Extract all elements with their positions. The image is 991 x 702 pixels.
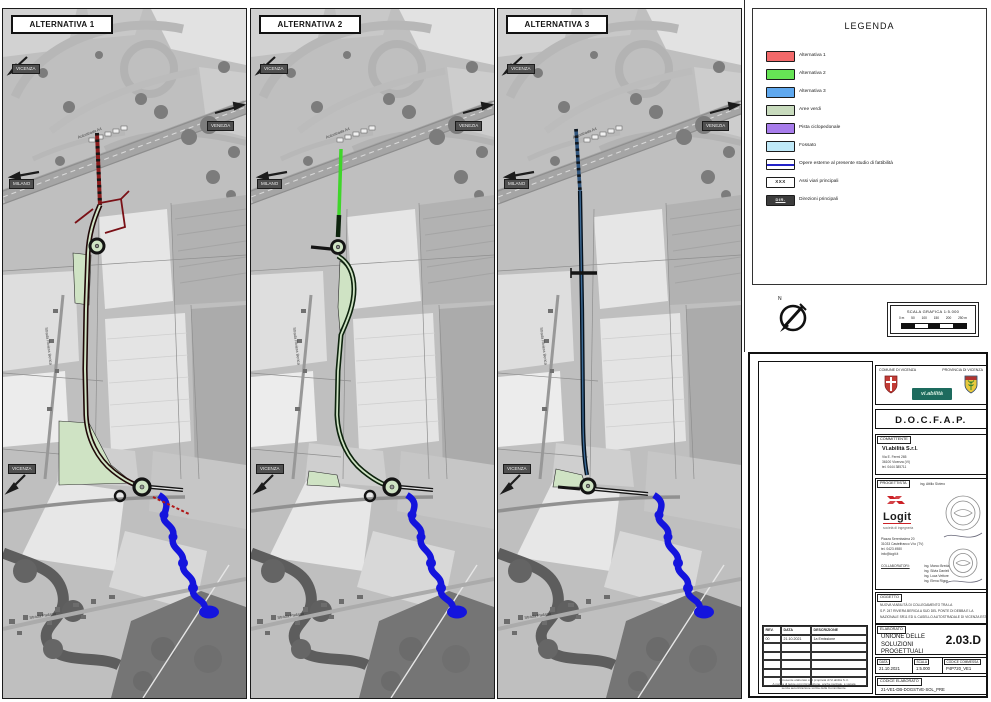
rev-cell: 00 [763, 635, 781, 644]
north-arrow-icon [776, 299, 810, 335]
scale-title: SCALA GRAFICA 1:5.000 [891, 309, 975, 314]
progettista-box: PROGETTISTA ing. Attilio Siviero Logit s… [875, 478, 987, 590]
rev-cell [781, 652, 811, 661]
meta-row: DATA 21.10.2021 SCALA 1:5.000 CODICE COM… [875, 657, 987, 674]
oggetto-line: NUOVA VIABILITÀ DI COLLEGAMENTO TRA LA [880, 603, 952, 608]
legend-swatch-alt3 [766, 87, 795, 98]
legend-item-aree-verdi: Aree verdi [753, 105, 986, 119]
scale-tick: 150 [934, 316, 939, 320]
scala-value: 1:5.000 [916, 666, 930, 671]
rev-header: DESCRIZIONE [811, 626, 867, 635]
doc-title-box: D.O.C.F.A.P. [875, 409, 987, 429]
aerial-photo-alt3 [498, 9, 741, 698]
revision-area: REV. DATA DESCRIZIONE 00 21.10.2021 1a E… [758, 361, 873, 694]
blue-line-glyph [767, 164, 794, 166]
map-label-milano: MILANO [504, 179, 529, 189]
map-label-venezia: VENEZIA [702, 121, 729, 131]
rev-header: REV. [763, 626, 781, 635]
map-label-venezia: VENEZIA [455, 121, 482, 131]
panel-badge-alt1: ALTERNATIVA 1 [11, 15, 113, 34]
xxx-glyph: XXX [767, 178, 794, 186]
map-label-milano: MILANO [9, 179, 34, 189]
elaborato-name: UNIONE DELLE SOLUZIONI PROGETTUALI [881, 634, 939, 657]
map-panel-alternativa-2: ALTERNATIVA 2 VICENZA VENEZIA MILANO VIC… [250, 8, 495, 699]
firm-line: info@logit.it [881, 552, 898, 557]
legend-item-opere-esterne: Opere esterne al presente studio di fatt… [753, 159, 986, 173]
legend-label: Pista ciclopedonale [799, 125, 840, 130]
scale-tick: 250 m [958, 316, 967, 320]
codice-elaborato-box: CODICE ELABORATO 21-VE1-DB-DOGSTVE-SOL_P… [875, 676, 987, 695]
logit-logo-icon [885, 495, 905, 509]
legend-swatch-alt1 [766, 51, 795, 62]
rev-cell [781, 643, 811, 652]
committente-line: tel. 0444 385711 [882, 465, 906, 470]
legend-item-alternativa-3: Alternativa 3 [753, 87, 986, 101]
committente-tab: COMMITTENTE [877, 436, 911, 444]
legend-label: Alternativa 3 [799, 89, 826, 94]
stamp-icon [940, 491, 984, 587]
map-label-venezia: VENEZIA [207, 121, 234, 131]
rev-cell [811, 660, 867, 669]
firm-line: tel. 0423 4980 [881, 547, 902, 552]
scala-label: SCALA [914, 659, 929, 665]
map-label-milano: MILANO [257, 179, 282, 189]
column-divider [744, 0, 745, 352]
rev-cell [811, 643, 867, 652]
scala-cell: SCALA 1:5.000 [912, 658, 942, 673]
data-label: DATA [877, 659, 890, 665]
legend-swatch-direzioni: DIR. [766, 195, 795, 206]
doc-title: D.O.C.F.A.P. [876, 415, 986, 426]
authorities-box: COMUNE DI VICENZA PROVINCIA DI VICENZA v… [875, 365, 987, 405]
commessa-label: CODICE COMMESSA [944, 659, 981, 665]
legend-panel: LEGENDA Alternativa 1 Alternativa 2 Alte… [752, 8, 987, 285]
fine-print: Il presente elaborato è di proprietà di … [761, 678, 867, 691]
provincia-shield-icon [964, 375, 978, 394]
title-block: REV. DATA DESCRIZIONE 00 21.10.2021 1a E… [748, 352, 988, 698]
committente-line: 36100 Vicenza (VI) [882, 460, 910, 465]
scale-bar-segments [901, 323, 967, 329]
elaborato-code: 2.03.D [946, 633, 981, 647]
elaborato-box: ELABORATO UNIONE DELLE SOLUZIONI PROGETT… [875, 624, 987, 655]
scale-tick: 50 [911, 316, 915, 320]
aerial-photo-alt1 [3, 9, 246, 698]
legend-item-alternativa-2: Alternativa 2 [753, 69, 986, 83]
legend-label: Alternativa 2 [799, 71, 826, 76]
viabilita-logo: vi.abilità [912, 388, 952, 400]
rev-cell [811, 652, 867, 661]
map-label-vicenza-bottom: VICENZA [256, 464, 284, 474]
committente-line: Via E. Fermi 265 [882, 455, 907, 460]
legend-swatch-pista [766, 123, 795, 134]
panel-badge-alt3: ALTERNATIVA 3 [506, 15, 608, 34]
oggetto-box: OGGETTO NUOVA VIABILITÀ DI COLLEGAMENTO … [875, 592, 987, 624]
comune-shield-icon [884, 375, 898, 394]
oggetto-line: S.P. 247 RIVIERA BERICA A SUD DEL PONTE … [880, 609, 973, 614]
committente-box: COMMITTENTE Vi.abilità S.r.l. Via E. Fer… [875, 434, 987, 475]
legend-item-alternativa-1: Alternativa 1 [753, 51, 986, 65]
provincia-label: PROVINCIA DI VICENZA [942, 368, 983, 372]
scale-tick: 200 [946, 316, 951, 320]
codice-elaborato-value: 21-VE1-DB-DOGSTVE-SOL_PRE [881, 687, 945, 692]
oggetto-line: NAZIONALE SR11 ED IL CASELLO AUTOSTRADAL… [880, 615, 987, 620]
drawing-sheet: ALTERNATIVA 1 VICENZA VENEZIA MILANO VIC… [0, 0, 991, 702]
data-cell: DATA 21.10.2021 [876, 658, 912, 673]
map-label-vicenza-top: VICENZA [260, 64, 288, 74]
data-value: 21.10.2021 [879, 666, 900, 671]
logit-tagline: società di ingegneria [883, 526, 913, 531]
legend-title: LEGENDA [753, 21, 986, 31]
rev-cell: 21.10.2021 [781, 635, 811, 644]
rev-cell [763, 652, 781, 661]
oggetto-tab: OGGETTO [877, 594, 902, 602]
codice-elaborato-label: CODICE ELABORATO [877, 678, 922, 686]
legend-item-assi-viari: XXX Assi viari principali [753, 177, 986, 191]
comune-label: COMUNE DI VICENZA [879, 368, 916, 372]
map-label-vicenza-top: VICENZA [12, 64, 40, 74]
committente-name: Vi.abilità S.r.l. [882, 446, 918, 452]
firm-line: Piazza Serenissima 20 [881, 537, 915, 542]
scale-tick: 0 m [899, 316, 904, 320]
legend-swatch-opere-esterne [766, 159, 795, 170]
legend-swatch-aree-verdi [766, 105, 795, 116]
map-panel-alternativa-1: ALTERNATIVA 1 VICENZA VENEZIA MILANO VIC… [2, 8, 247, 699]
rev-cell [763, 660, 781, 669]
firm-line: 31033 Castelfranco V.to (TV) [881, 542, 923, 547]
legend-item-fossato: Fossato [753, 141, 986, 155]
rev-cell [811, 669, 867, 678]
legend-label: Assi viari principali [799, 179, 838, 184]
commessa-cell: CODICE COMMESSA P4P720_VE1 [942, 658, 986, 673]
scale-ticks: 0 m 50 100 150 200 250 m [899, 316, 967, 320]
rev-cell [763, 669, 781, 678]
legend-label: Alternativa 1 [799, 53, 826, 58]
map-label-vicenza-top: VICENZA [507, 64, 535, 74]
map-panel-alternativa-3: ALTERNATIVA 3 VICENZA VENEZIA MILANO VIC… [497, 8, 742, 699]
panel-badge-alt2: ALTERNATIVA 2 [259, 15, 361, 34]
engineer-name: ing. Attilio Siviero [920, 482, 945, 487]
team-label: COLLABORATORI: [881, 564, 910, 569]
legend-label: Direzioni principali [799, 197, 838, 202]
logit-wordmark: Logit [883, 511, 911, 524]
progettista-tab: PROGETTISTA [877, 480, 910, 488]
rev-cell: 1a Emissione [811, 635, 867, 644]
legend-label: Aree verdi [799, 107, 821, 112]
legend-label: Fossato [799, 143, 816, 148]
map-label-vicenza-bottom: VICENZA [503, 464, 531, 474]
legend-item-pista-ciclopedonale: Pista ciclopedonale [753, 123, 986, 137]
legend-item-direzioni: DIR. Direzioni principali [753, 195, 986, 209]
legend-label: Opere esterne al presente studio di fatt… [799, 161, 893, 166]
aerial-photo-alt2 [251, 9, 494, 698]
scale-tick: 100 [922, 316, 927, 320]
elaborato-tab: ELABORATO [877, 626, 906, 634]
map-label-vicenza-bottom: VICENZA [8, 464, 36, 474]
rev-header: DATA [781, 626, 811, 635]
rev-cell [763, 643, 781, 652]
fine-print-line: senza autorizzazione scritta della Commi… [761, 686, 867, 690]
rev-cell [781, 660, 811, 669]
scale-bar: SCALA GRAFICA 1:5.000 0 m 50 100 150 200… [890, 305, 976, 334]
dir-glyph: DIR. [767, 196, 794, 204]
legend-swatch-assi-viari: XXX [766, 177, 795, 188]
commessa-value: P4P720_VE1 [946, 666, 971, 671]
rev-cell [781, 669, 811, 678]
legend-swatch-fossato [766, 141, 795, 152]
legend-swatch-alt2 [766, 69, 795, 80]
